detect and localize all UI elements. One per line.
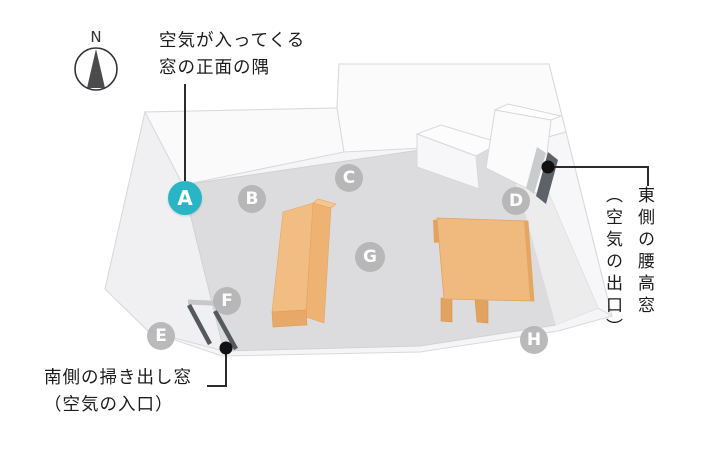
callout-inlet-corner-line2: 窓の正面の隅: [159, 55, 305, 82]
marker-label: E: [155, 326, 167, 346]
callout-east-window-line1: 東側の腰高窓: [628, 186, 660, 361]
marker-label: A: [177, 186, 192, 210]
marker-label: D: [509, 191, 523, 211]
marker-label: G: [363, 247, 377, 267]
marker-label: F: [221, 291, 233, 311]
marker-H[interactable]: H: [520, 326, 548, 354]
south-window-dot: [220, 342, 233, 355]
callout-east-window: 東側の腰高窓 （空気の出口）: [596, 186, 660, 361]
compass: N: [75, 28, 117, 90]
compass-n-label: N: [90, 28, 101, 46]
marker-C[interactable]: C: [335, 164, 363, 192]
marker-G[interactable]: G: [355, 242, 385, 272]
callout-inlet-corner: 空気が入ってくる 窓の正面の隅: [159, 28, 305, 82]
marker-label: H: [527, 330, 541, 350]
marker-B[interactable]: B: [238, 185, 266, 213]
callout-east-window-line2: （空気の出口）: [596, 186, 628, 361]
callout-south-window-line1: 南側の掃き出し窓: [44, 365, 192, 392]
callout-inlet-corner-line1: 空気が入ってくる: [159, 28, 305, 55]
marker-label: C: [343, 168, 355, 188]
marker-F[interactable]: F: [213, 287, 241, 315]
callout-south-window: 南側の掃き出し窓 （空気の入口）: [44, 365, 192, 419]
marker-D[interactable]: D: [502, 187, 530, 215]
callout-south-window-line2: （空気の入口）: [44, 392, 192, 419]
marker-label: B: [246, 189, 259, 209]
marker-E[interactable]: E: [147, 322, 175, 350]
east-window-dot: [542, 161, 555, 174]
marker-A[interactable]: A: [168, 181, 202, 215]
